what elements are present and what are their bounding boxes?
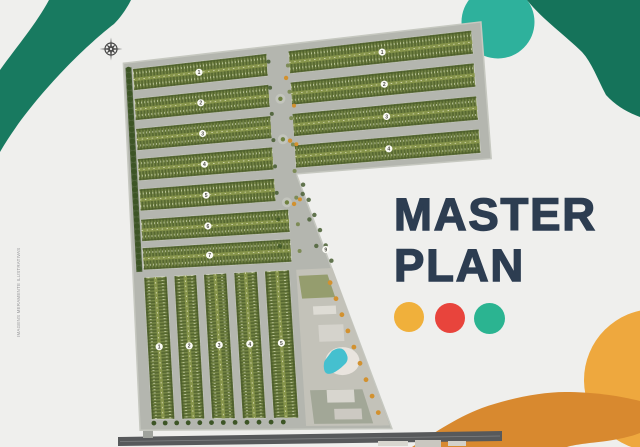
svg-text:2: 2	[383, 82, 386, 88]
svg-text:2: 2	[188, 344, 191, 350]
svg-text:7: 7	[208, 253, 211, 259]
svg-text:3: 3	[201, 131, 204, 137]
svg-text:4: 4	[203, 162, 206, 168]
svg-text:1: 1	[198, 70, 201, 76]
svg-text:2: 2	[199, 101, 202, 107]
svg-text:4: 4	[387, 147, 390, 153]
svg-text:9: 9	[324, 247, 327, 253]
svg-text:1: 1	[158, 345, 161, 351]
svg-text:5: 5	[280, 341, 283, 347]
svg-text:5: 5	[205, 193, 208, 199]
svg-text:3: 3	[218, 343, 221, 349]
svg-text:4: 4	[248, 342, 251, 348]
svg-text:1: 1	[381, 50, 384, 56]
svg-text:6: 6	[207, 224, 210, 230]
svg-text:3: 3	[385, 114, 388, 120]
